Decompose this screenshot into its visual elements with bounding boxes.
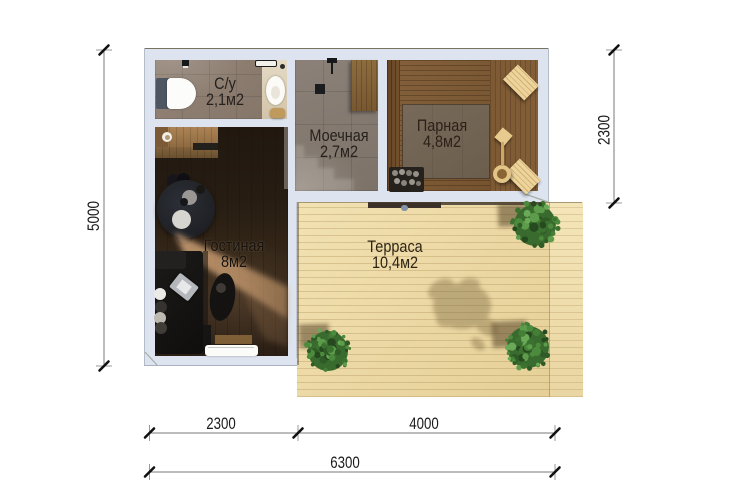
svg-text:2300: 2300 bbox=[596, 115, 614, 145]
svg-text:6300: 6300 bbox=[330, 454, 360, 472]
svg-text:2300: 2300 bbox=[206, 415, 236, 433]
svg-text:5000: 5000 bbox=[85, 201, 103, 231]
svg-text:4000: 4000 bbox=[409, 415, 439, 433]
